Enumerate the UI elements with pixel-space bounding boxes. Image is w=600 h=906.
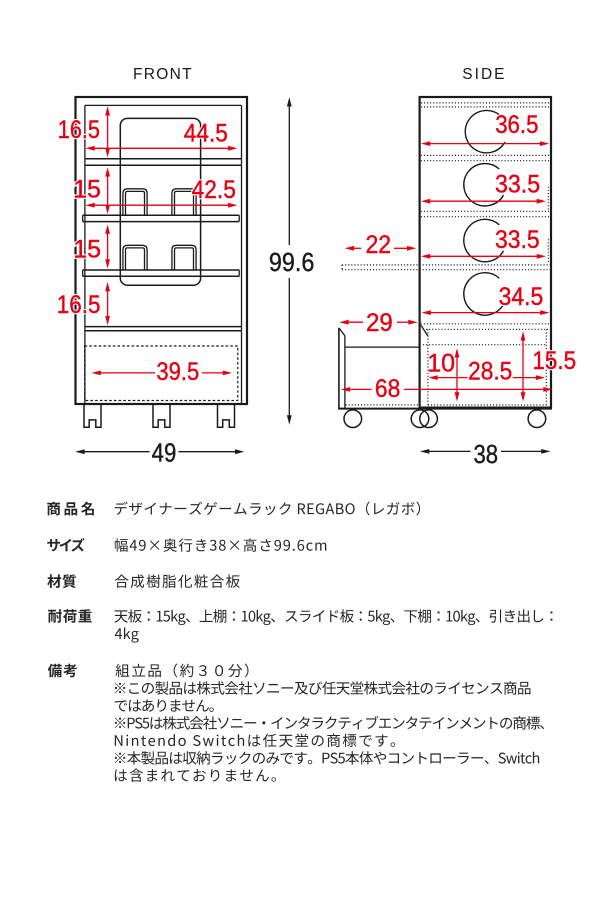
svg-text:44.5: 44.5 <box>184 119 228 147</box>
svg-text:16.5: 16.5 <box>57 291 101 319</box>
svg-text:16.5: 16.5 <box>58 116 100 144</box>
svg-text:34.5: 34.5 <box>499 283 544 311</box>
svg-text:15.5: 15.5 <box>532 347 576 375</box>
svg-text:38: 38 <box>474 439 499 469</box>
svg-text:42.5: 42.5 <box>192 176 236 204</box>
svg-text:FRONT: FRONT <box>133 66 193 83</box>
svg-text:29: 29 <box>366 309 393 337</box>
svg-text:22: 22 <box>365 231 391 259</box>
svg-text:10: 10 <box>427 350 455 378</box>
svg-text:28.5: 28.5 <box>468 358 512 386</box>
svg-text:39.5: 39.5 <box>156 358 199 386</box>
svg-text:33.5: 33.5 <box>495 171 540 199</box>
svg-text:99.6: 99.6 <box>269 247 315 277</box>
svg-text:33.5: 33.5 <box>495 226 540 254</box>
svg-text:15: 15 <box>73 235 101 263</box>
svg-text:68: 68 <box>375 375 400 403</box>
svg-text:15: 15 <box>73 176 101 204</box>
svg-text:49: 49 <box>152 437 177 467</box>
svg-text:36.5: 36.5 <box>495 111 538 139</box>
svg-text:SIDE: SIDE <box>462 66 506 83</box>
